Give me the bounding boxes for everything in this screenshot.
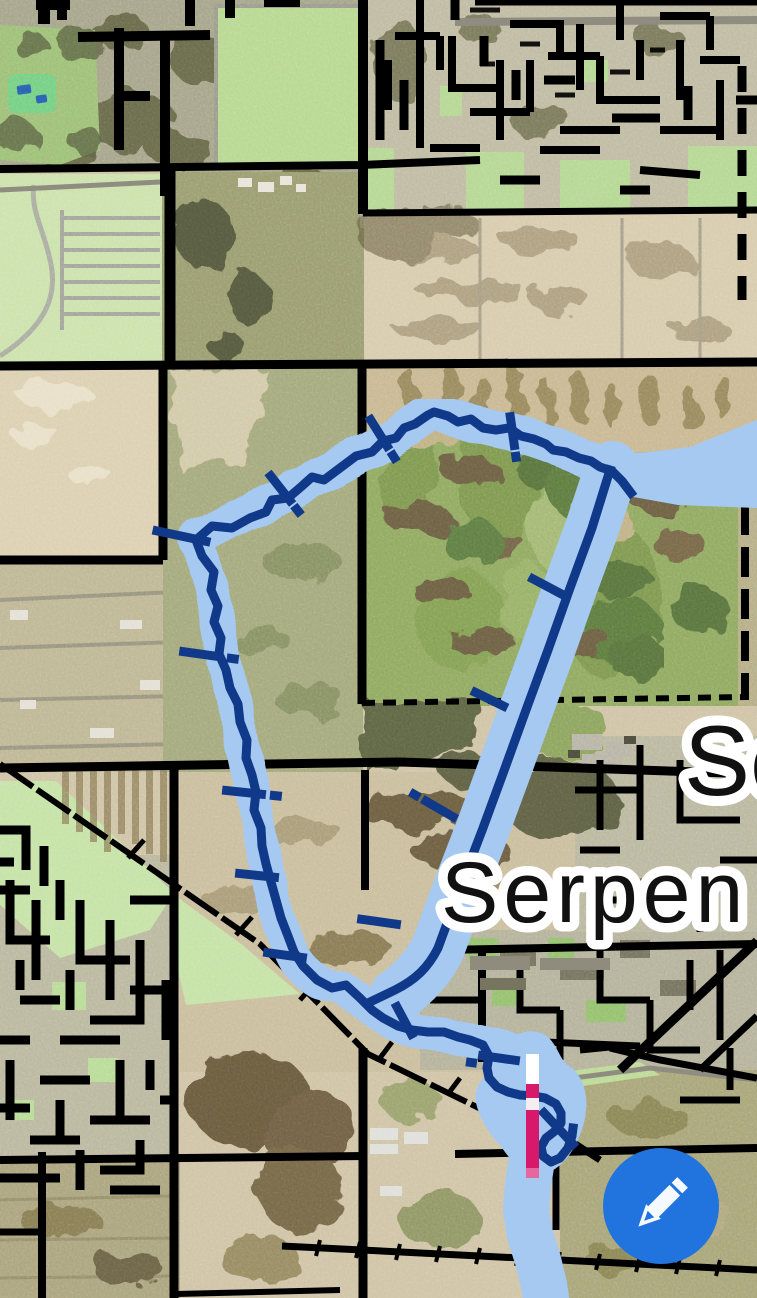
svg-text:Serpen: Serpen	[441, 845, 748, 941]
svg-text:Se: Se	[684, 705, 757, 816]
